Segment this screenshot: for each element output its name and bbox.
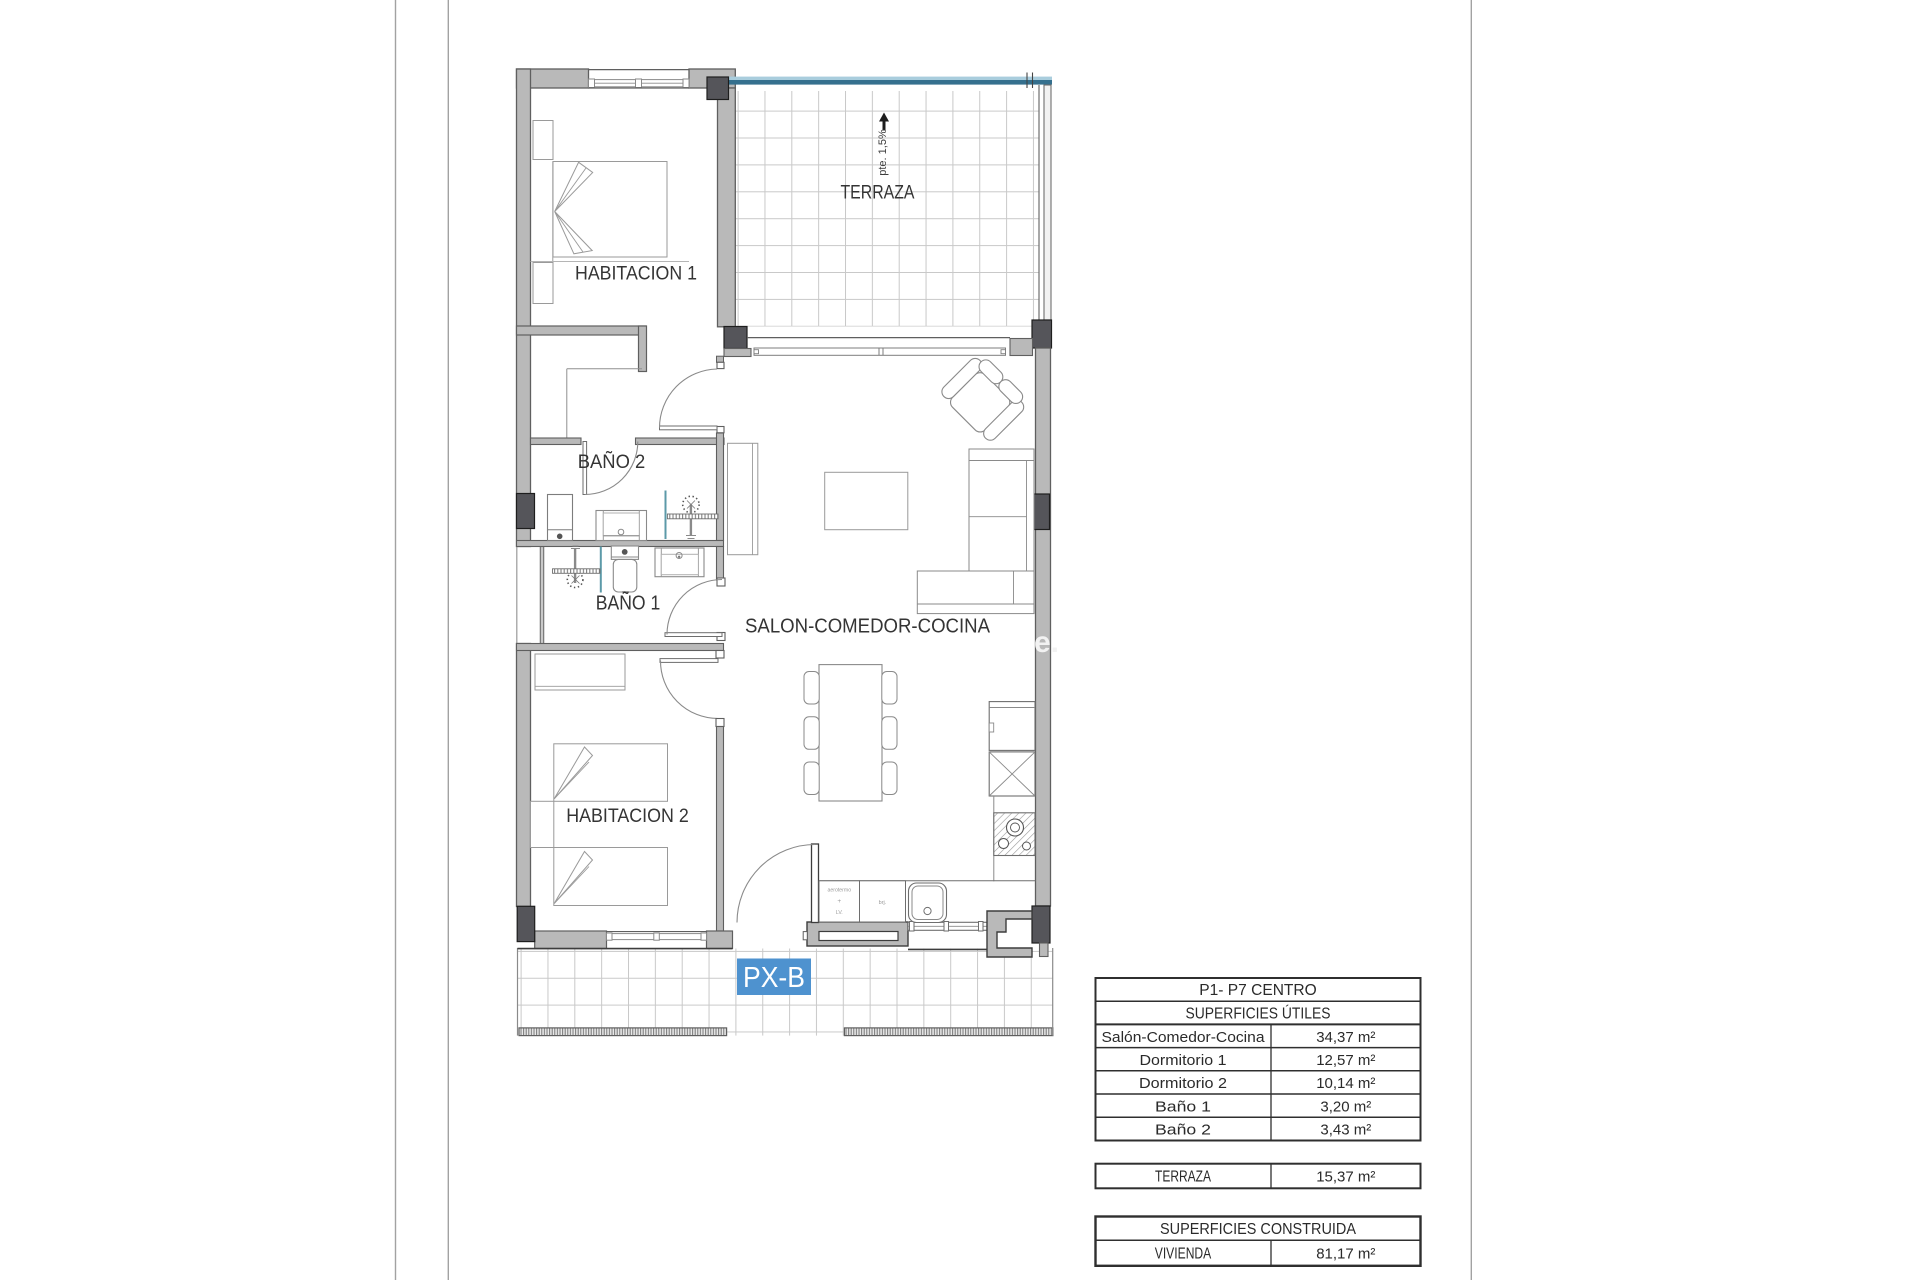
svg-text:81,17 m²: 81,17 m²	[1316, 1246, 1375, 1263]
svg-text:SUPERFICIES CONSTRUIDA: SUPERFICIES CONSTRUIDA	[1160, 1221, 1357, 1238]
svg-text:SUPERFICIES ÚTILES: SUPERFICIES ÚTILES	[1186, 1005, 1331, 1022]
svg-text:3,20 m²: 3,20 m²	[1320, 1098, 1371, 1115]
svg-text:HABITACION 2: HABITACION 2	[566, 805, 689, 827]
svg-text:15,37 m²: 15,37 m²	[1316, 1169, 1375, 1186]
svg-text:SALON-COMEDOR-COCINA: SALON-COMEDOR-COCINA	[745, 616, 991, 638]
svg-text:12,57 m²: 12,57 m²	[1316, 1052, 1375, 1069]
svg-text:10,14 m²: 10,14 m²	[1316, 1075, 1375, 1092]
svg-text:BAÑO 2: BAÑO 2	[578, 451, 646, 473]
svg-text:HABITACION 1: HABITACION 1	[575, 264, 697, 285]
svg-text:Dormitorio 1: Dormitorio 1	[1140, 1052, 1227, 1069]
svg-text:brj.: brj.	[879, 900, 887, 906]
svg-text:pte. 1,5%: pte. 1,5%	[877, 129, 889, 176]
svg-text:TERRAZA: TERRAZA	[1155, 1169, 1212, 1186]
svg-text:Baño 1: Baño 1	[1155, 1098, 1211, 1115]
svg-text:LV.: LV.	[836, 910, 843, 916]
svg-text:TERRAZA: TERRAZA	[841, 183, 915, 204]
svg-text:P1- P7 CENTRO: P1- P7 CENTRO	[1199, 982, 1317, 999]
svg-text:VIVIENDA: VIVIENDA	[1155, 1246, 1212, 1263]
svg-text:Salón-Comedor-Cocina: Salón-Comedor-Cocina	[1102, 1029, 1266, 1046]
svg-text:BAÑO 1: BAÑO 1	[596, 592, 661, 615]
svg-text:aerotermo: aerotermo	[827, 888, 851, 894]
svg-text:3,43 m²: 3,43 m²	[1320, 1122, 1371, 1139]
svg-text:e.: e.	[1034, 626, 1059, 659]
svg-text:PX-B: PX-B	[743, 962, 805, 994]
svg-text:+: +	[837, 898, 841, 905]
svg-text:Baño 2: Baño 2	[1155, 1122, 1211, 1139]
svg-text:Dormitorio 2: Dormitorio 2	[1139, 1075, 1227, 1092]
svg-text:34,37 m²: 34,37 m²	[1316, 1029, 1375, 1046]
